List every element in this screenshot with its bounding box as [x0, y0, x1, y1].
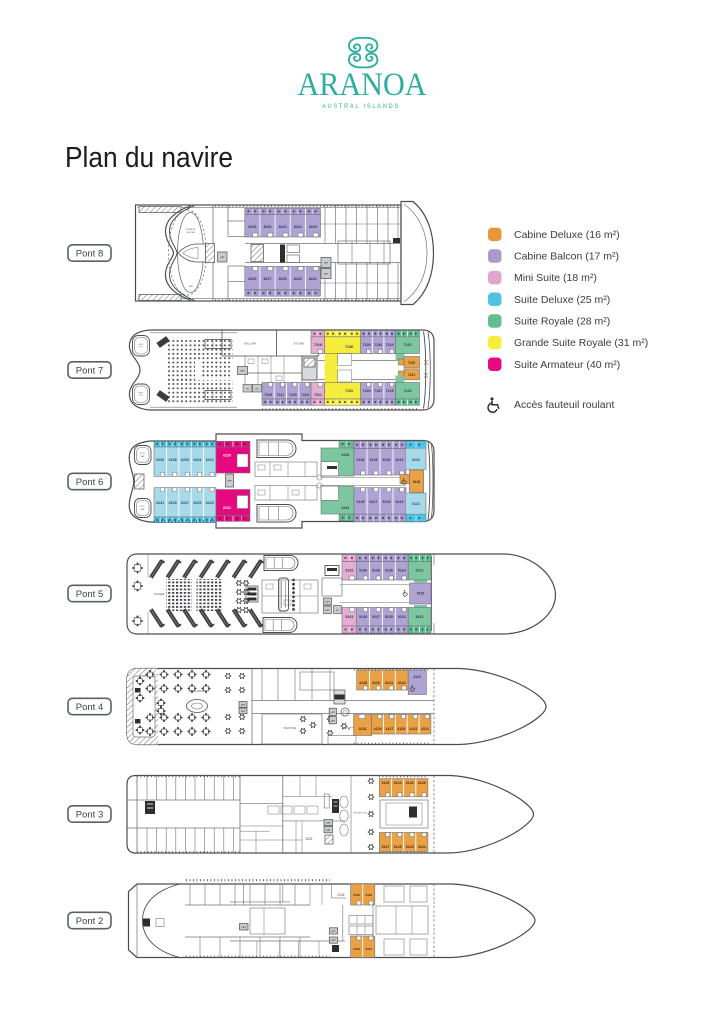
svg-text:Pont 7: Pont 7 [76, 365, 103, 376]
svg-text:6222: 6222 [206, 458, 214, 462]
svg-text:8229: 8229 [248, 277, 256, 281]
svg-text:6124: 6124 [396, 458, 404, 462]
svg-text:5127: 5127 [372, 615, 380, 619]
svg-text:ARANOA: ARANOA [298, 67, 427, 103]
svg-text:7228: 7228 [314, 343, 322, 347]
svg-text:8223: 8223 [294, 277, 302, 281]
svg-text:6125: 6125 [383, 500, 391, 504]
svg-text:5124: 5124 [398, 569, 406, 573]
svg-text:3125: 3125 [394, 845, 402, 849]
svg-text:8228: 8228 [248, 225, 256, 229]
svg-text:4123: 4123 [409, 727, 417, 731]
svg-text:6130: 6130 [357, 458, 365, 462]
svg-text:4120: 4120 [413, 675, 421, 679]
svg-text:5126: 5126 [385, 569, 393, 573]
svg-text:8220: 8220 [309, 225, 317, 229]
svg-text:4129: 4129 [374, 727, 382, 731]
svg-text:Cabine Balcon (17 m²): Cabine Balcon (17 m²) [514, 251, 619, 263]
svg-text:4127: 4127 [385, 727, 393, 731]
svg-text:7223: 7223 [301, 393, 309, 397]
svg-text:Cabine Deluxe (16 m²): Cabine Deluxe (16 m²) [514, 229, 620, 241]
svg-text:BOUTIQUE: BOUTIQUE [284, 727, 297, 730]
svg-text:WC: WC [336, 610, 340, 612]
svg-text:7129: 7129 [363, 389, 371, 393]
svg-text:7127: 7127 [374, 389, 382, 393]
svg-text:7121: 7121 [408, 373, 416, 377]
svg-text:7225: 7225 [289, 393, 297, 397]
svg-text:6127: 6127 [370, 500, 378, 504]
svg-text:7130: 7130 [345, 345, 353, 349]
svg-text:6122: 6122 [412, 458, 420, 462]
svg-text:Accès fauteuil roulant: Accès fauteuil roulant [514, 399, 614, 411]
svg-text:Pont 3: Pont 3 [76, 809, 103, 820]
svg-text:7122: 7122 [404, 343, 412, 347]
svg-text:2132: 2132 [353, 893, 360, 897]
svg-text:CENTER: CENTER [186, 232, 195, 234]
svg-text:5123: 5123 [398, 615, 406, 619]
svg-text:5129: 5129 [359, 615, 367, 619]
svg-text:6223: 6223 [206, 501, 214, 505]
svg-text:5131: 5131 [345, 615, 353, 619]
svg-text:5130: 5130 [359, 569, 367, 573]
svg-text:KITCHEN: KITCHEN [294, 343, 305, 346]
svg-text:3127: 3127 [381, 845, 389, 849]
svg-text:6220: 6220 [223, 454, 231, 458]
svg-text:8222: 8222 [294, 225, 302, 229]
svg-text:3120: 3120 [418, 781, 426, 785]
svg-text:Plan du navire: Plan du navire [65, 142, 233, 174]
svg-text:5125: 5125 [385, 615, 393, 619]
svg-text:5122: 5122 [416, 569, 424, 573]
svg-text:6120: 6120 [413, 480, 421, 484]
svg-text:Pont 4: Pont 4 [76, 702, 103, 713]
svg-text:6229: 6229 [169, 501, 177, 505]
svg-text:4125: 4125 [397, 727, 405, 731]
svg-text:Pont 5: Pont 5 [76, 589, 103, 600]
svg-text:LOUNGE: LOUNGE [154, 593, 165, 596]
svg-text:POOL: POOL [140, 506, 145, 508]
svg-text:6224: 6224 [193, 458, 201, 462]
svg-text:6227: 6227 [181, 501, 189, 505]
svg-text:Pont 8: Pont 8 [76, 248, 103, 259]
svg-text:6123: 6123 [396, 500, 404, 504]
svg-text:6128: 6128 [370, 458, 378, 462]
svg-text:SPA: SPA [188, 285, 193, 288]
svg-text:4124: 4124 [385, 681, 393, 685]
svg-text:6225: 6225 [193, 501, 201, 505]
svg-text:7124: 7124 [386, 343, 394, 347]
svg-text:4128: 4128 [359, 681, 367, 685]
svg-text:4122: 4122 [398, 681, 406, 685]
svg-text:5132: 5132 [345, 569, 353, 573]
svg-text:WHIRL: WHIRL [138, 344, 143, 346]
svg-text:7221: 7221 [314, 393, 322, 397]
svg-text:Suite Royale (28 m²): Suite Royale (28 m²) [514, 316, 610, 328]
svg-text:POOL: POOL [139, 395, 144, 397]
svg-text:7125: 7125 [386, 389, 394, 393]
svg-text:4126: 4126 [372, 681, 380, 685]
svg-text:Pont 6: Pont 6 [76, 477, 103, 488]
svg-text:2130: 2130 [365, 893, 372, 897]
svg-text:WHIRL: WHIRL [138, 392, 143, 394]
svg-text:6230: 6230 [156, 458, 164, 462]
svg-text:3221: 3221 [305, 837, 313, 841]
svg-text:Mini Suite (18 m²): Mini Suite (18 m²) [514, 272, 597, 284]
svg-text:2133: 2133 [353, 947, 360, 951]
svg-text:8226: 8226 [264, 225, 272, 229]
svg-text:WC: WC [255, 389, 259, 391]
svg-text:6129: 6129 [357, 500, 365, 504]
svg-text:8227: 8227 [264, 277, 272, 281]
svg-text:5121: 5121 [416, 615, 424, 619]
svg-text:7229: 7229 [264, 393, 272, 397]
svg-text:6131: 6131 [342, 506, 350, 510]
svg-text:RESTAURANT: RESTAURANT [189, 690, 205, 693]
svg-text:6132: 6132 [342, 453, 350, 457]
svg-text:RECEPTION: RECEPTION [354, 813, 367, 815]
svg-text:7126: 7126 [374, 343, 382, 347]
svg-text:4131: 4131 [359, 727, 367, 731]
svg-text:6226: 6226 [181, 458, 189, 462]
svg-text:3124: 3124 [394, 781, 402, 785]
svg-text:Suite Deluxe (25 m²): Suite Deluxe (25 m²) [514, 294, 610, 306]
svg-text:6221: 6221 [223, 506, 231, 510]
svg-text:POOL: POOL [139, 347, 144, 349]
svg-text:6231: 6231 [156, 501, 164, 505]
svg-text:2134: 2134 [337, 893, 344, 897]
svg-text:POOL: POOL [140, 453, 145, 455]
svg-text:5120: 5120 [417, 592, 425, 596]
svg-text:3123: 3123 [406, 845, 414, 849]
svg-text:FITNESS: FITNESS [186, 229, 196, 231]
svg-text:Suite Armateur (40 m²): Suite Armateur (40 m²) [514, 359, 620, 371]
svg-text:3121: 3121 [418, 845, 426, 849]
svg-text:7227: 7227 [276, 393, 284, 397]
svg-text:7131: 7131 [345, 389, 353, 393]
svg-text:Grande Suite Royale (31 m²): Grande Suite Royale (31 m²) [514, 337, 648, 349]
svg-text:5128: 5128 [372, 569, 380, 573]
svg-text:4121: 4121 [421, 727, 429, 731]
svg-text:6228: 6228 [169, 458, 177, 462]
svg-text:WC: WC [246, 389, 250, 391]
svg-text:6121: 6121 [412, 502, 420, 506]
svg-text:8224: 8224 [279, 225, 287, 229]
svg-text:3122: 3122 [406, 781, 414, 785]
svg-text:8225: 8225 [279, 277, 287, 281]
svg-text:GRILL BAR: GRILL BAR [244, 343, 257, 346]
svg-text:2131: 2131 [365, 947, 372, 951]
svg-text:6126: 6126 [383, 458, 391, 462]
svg-text:Pont 2: Pont 2 [76, 916, 103, 927]
svg-text:AUSTRAL ISLANDS: AUSTRAL ISLANDS [322, 103, 400, 110]
svg-text:7128: 7128 [363, 343, 371, 347]
svg-text:7120: 7120 [408, 361, 416, 365]
svg-text:8221: 8221 [309, 277, 317, 281]
svg-text:7123: 7123 [404, 389, 412, 393]
svg-text:3126: 3126 [381, 781, 389, 785]
